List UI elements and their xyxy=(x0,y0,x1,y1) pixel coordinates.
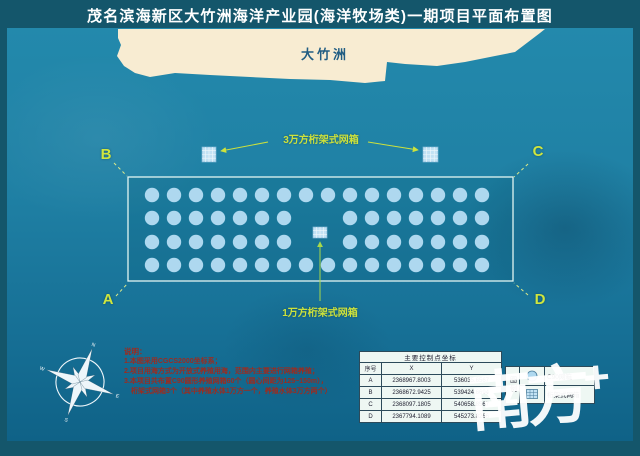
coords-table-body: A2368967.8003536035.6567B2368672.9425539… xyxy=(360,375,502,423)
legend-item-label: C90网箱 xyxy=(545,371,594,381)
notes-line-2: 2.项目用海方式为开放式养殖用海，范围内主要进行网箱养殖； xyxy=(124,367,362,377)
truss-cage-10k-label: 1万方桁架式网箱 xyxy=(235,304,405,319)
table-header-id: 序号 xyxy=(360,363,382,375)
table-row: A2368967.8003536035.6567 xyxy=(360,375,502,387)
table-row: C2368097.1805540658.8567 xyxy=(360,399,502,411)
corner-label-C: C xyxy=(527,143,549,160)
island-name-label: 大竹洲 xyxy=(270,44,380,63)
circle-cage-icon xyxy=(520,367,545,385)
table-header-x: X xyxy=(382,363,442,375)
legend-title: 图例 xyxy=(506,367,520,403)
corner-label-D: D xyxy=(529,291,551,308)
notes-line-3: 3.本项目共布置C90圆形养殖网箱60个（圆心间距为125~150m）， xyxy=(124,377,362,387)
legend-item-truss-cage: 桁架式网箱 xyxy=(520,385,594,404)
table-header-y: Y xyxy=(442,363,502,375)
truss-cage-30k-label: 3万方桁架式网箱 xyxy=(236,131,406,146)
legend-item-label: 桁架式网箱 xyxy=(545,389,594,399)
notes-block: 说明： 1.本图采用CGCS2000坐标系； 2.项目用海方式为开放式养殖用海，… xyxy=(124,347,362,397)
table-row: B2368672.9425539424.6694 xyxy=(360,387,502,399)
notes-line-1: 1.本图采用CGCS2000坐标系； xyxy=(124,357,362,367)
table-row: D2367794.1089545273.8266 xyxy=(360,411,502,423)
corner-label-A: A xyxy=(97,291,119,308)
coordinates-table-title: 主要控制点坐标 xyxy=(360,352,502,363)
notes-line-4: 桁架式网箱3个（其中养殖水体1万方一个，养殖水体3万方两个） xyxy=(124,387,362,397)
notes-heading: 说明： xyxy=(124,347,362,357)
legend-item-circle-cage: C90网箱 xyxy=(520,367,594,385)
coordinates-table: 主要控制点坐标 序号 X Y A2368967.8003536035.6567B… xyxy=(359,351,502,423)
page-title: 茂名滨海新区大竹洲海洋产业园(海洋牧场类)一期项目平面布置图 xyxy=(0,5,640,29)
corner-label-B: B xyxy=(95,146,117,163)
truss-cage-icon xyxy=(520,386,545,404)
legend-box: 图例 C90网箱 桁架式网箱 xyxy=(505,366,595,404)
